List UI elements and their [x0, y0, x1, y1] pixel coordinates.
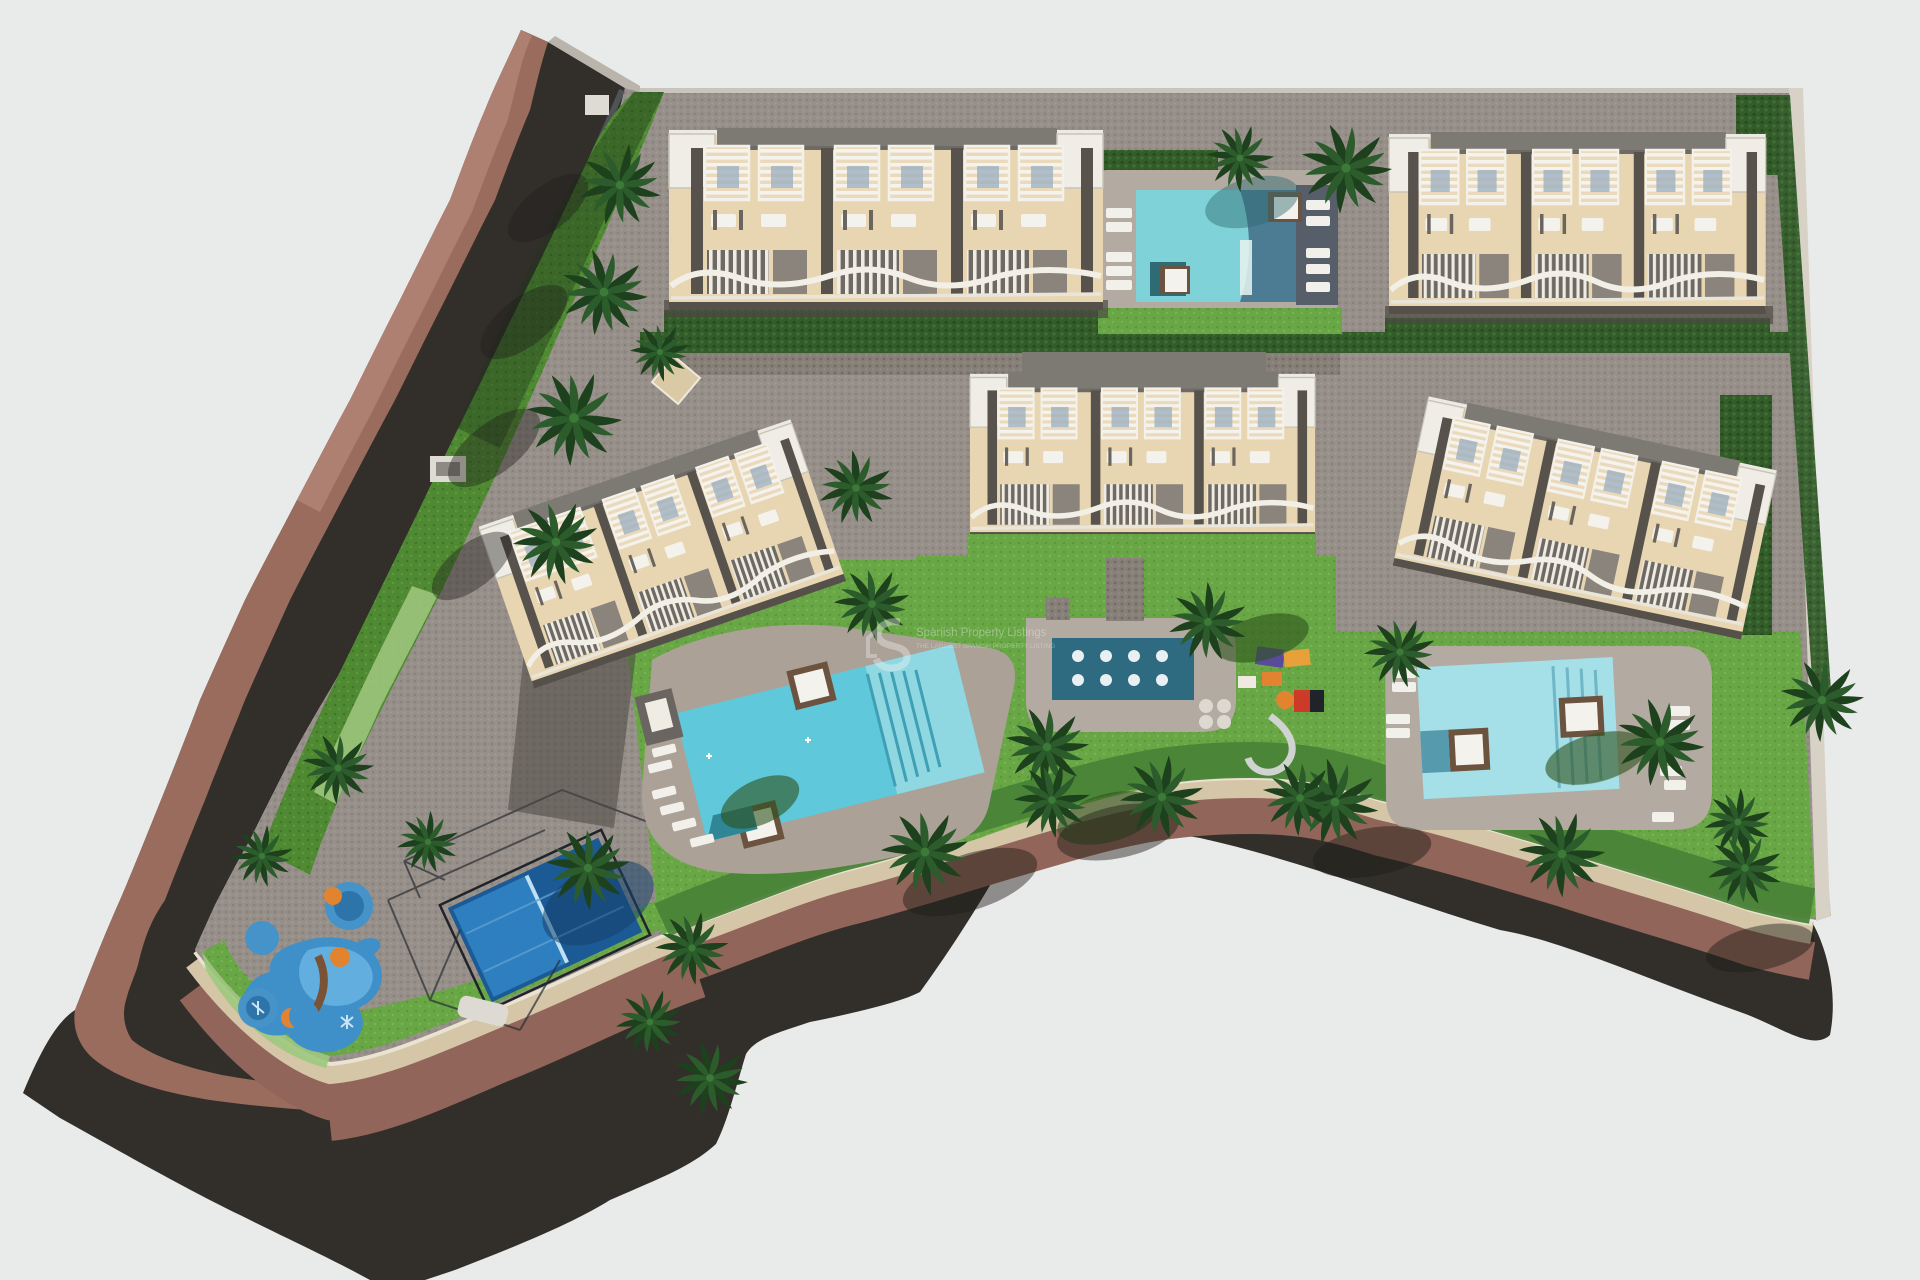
svg-text:THE LARGEST SPANISH PROPERTY L: THE LARGEST SPANISH PROPERTY LISTING [916, 643, 1055, 650]
svg-text:Spanish Property Listings: Spanish Property Listings [916, 627, 1047, 639]
